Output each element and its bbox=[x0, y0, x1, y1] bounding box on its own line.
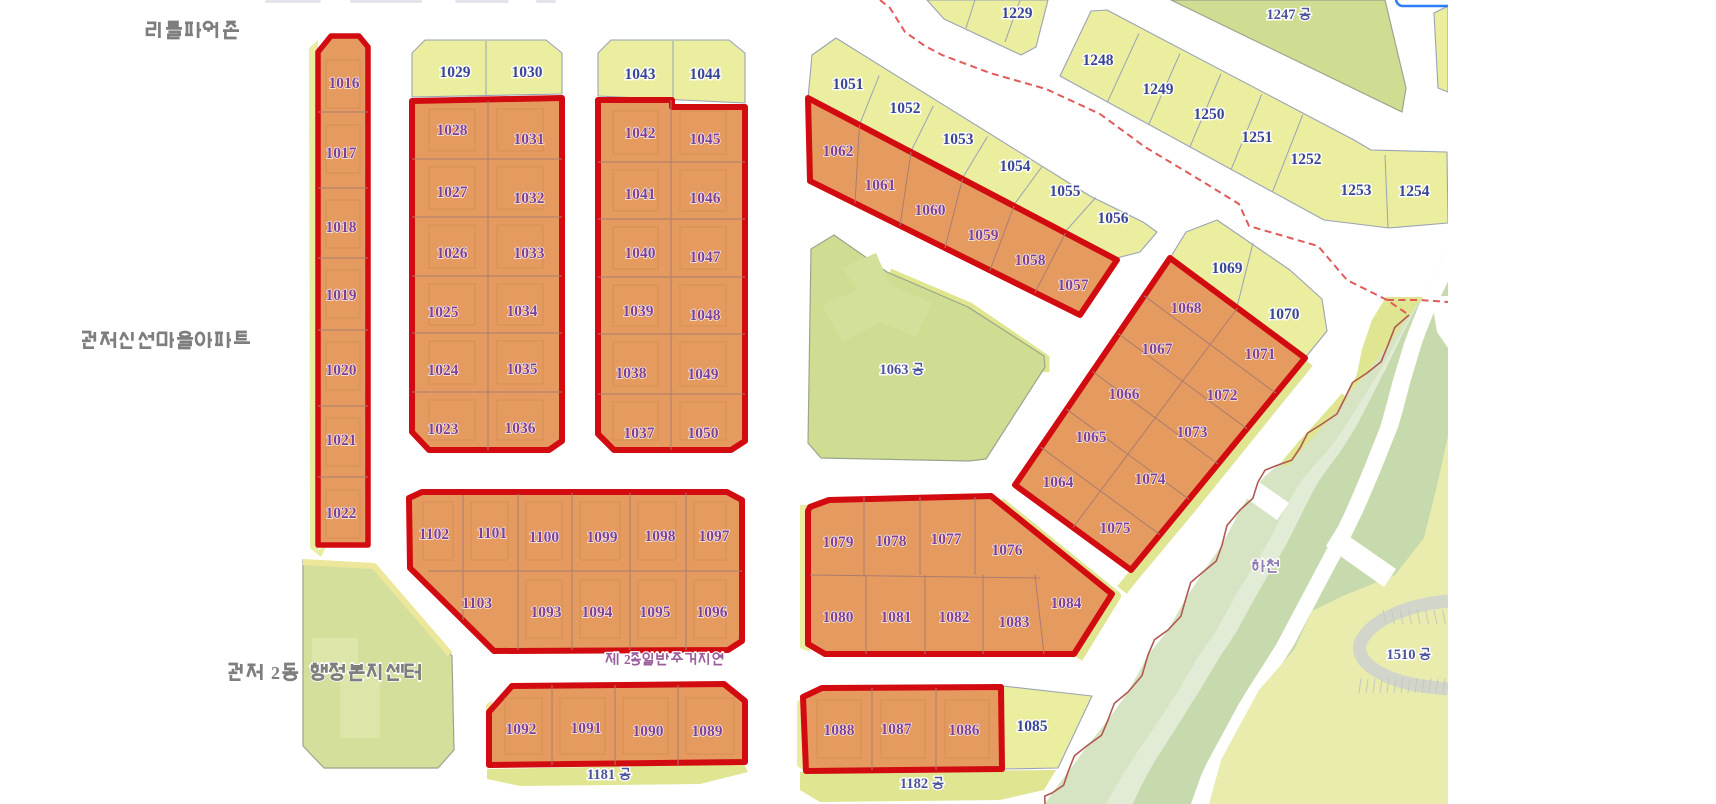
svg-text:1048: 1048 bbox=[690, 307, 721, 324]
svg-text:1070: 1070 bbox=[1269, 306, 1300, 323]
svg-text:1250: 1250 bbox=[1194, 106, 1225, 123]
svg-text:1031: 1031 bbox=[514, 131, 545, 148]
svg-text:1094: 1094 bbox=[582, 604, 613, 621]
svg-text:1037: 1037 bbox=[624, 425, 655, 442]
svg-text:1098: 1098 bbox=[645, 528, 676, 545]
svg-text:1022: 1022 bbox=[326, 505, 357, 522]
svg-text:1018: 1018 bbox=[326, 219, 357, 236]
svg-text:1066: 1066 bbox=[1109, 386, 1140, 403]
svg-text:1102: 1102 bbox=[419, 526, 449, 543]
svg-text:1056: 1056 bbox=[1098, 210, 1129, 227]
svg-text:1086: 1086 bbox=[949, 722, 980, 739]
svg-text:1082: 1082 bbox=[939, 609, 970, 626]
svg-text:1510: 1510 bbox=[1387, 647, 1416, 663]
svg-text:1027: 1027 bbox=[437, 184, 468, 201]
svg-text:1038: 1038 bbox=[616, 365, 647, 382]
svg-text:1229: 1229 bbox=[1002, 5, 1033, 22]
svg-text:1095: 1095 bbox=[640, 604, 671, 621]
svg-text:1044: 1044 bbox=[690, 66, 721, 83]
svg-text:2: 2 bbox=[271, 663, 280, 683]
svg-text:1103: 1103 bbox=[462, 595, 492, 612]
svg-text:1024: 1024 bbox=[428, 362, 459, 379]
svg-text:1081: 1081 bbox=[881, 609, 912, 626]
svg-text:1100: 1100 bbox=[529, 529, 559, 546]
svg-text:1084: 1084 bbox=[1051, 595, 1082, 612]
svg-text:1061: 1061 bbox=[865, 177, 896, 194]
svg-text:1064: 1064 bbox=[1043, 474, 1074, 491]
svg-text:1026: 1026 bbox=[437, 245, 468, 262]
svg-text:1065: 1065 bbox=[1076, 429, 1107, 446]
svg-text:1182: 1182 bbox=[900, 776, 928, 792]
svg-text:1097: 1097 bbox=[699, 528, 730, 545]
svg-text:1247: 1247 bbox=[1267, 7, 1296, 23]
svg-text:1251: 1251 bbox=[1242, 129, 1273, 146]
svg-text:1092: 1092 bbox=[506, 721, 537, 738]
svg-text:1253: 1253 bbox=[1341, 182, 1372, 199]
svg-text:1025: 1025 bbox=[428, 304, 459, 321]
svg-text:1016: 1016 bbox=[329, 75, 360, 92]
svg-text:1059: 1059 bbox=[968, 227, 999, 244]
svg-text:1057: 1057 bbox=[1058, 277, 1089, 294]
svg-text:1017: 1017 bbox=[326, 145, 357, 162]
svg-text:1099: 1099 bbox=[587, 529, 618, 546]
svg-text:1089: 1089 bbox=[692, 723, 723, 740]
svg-text:1040: 1040 bbox=[625, 245, 656, 262]
svg-text:1033: 1033 bbox=[514, 245, 545, 262]
svg-text:1069: 1069 bbox=[1212, 260, 1243, 277]
svg-text:1072: 1072 bbox=[1207, 387, 1238, 404]
svg-text:1091: 1091 bbox=[571, 720, 602, 737]
svg-text:1055: 1055 bbox=[1050, 183, 1081, 200]
svg-text:1067: 1067 bbox=[1142, 341, 1173, 358]
svg-text:1021: 1021 bbox=[326, 432, 357, 449]
svg-text:1054: 1054 bbox=[1000, 158, 1031, 175]
svg-text:1249: 1249 bbox=[1143, 81, 1174, 98]
svg-text:1058: 1058 bbox=[1015, 252, 1046, 269]
svg-text:1039: 1039 bbox=[623, 303, 654, 320]
svg-text:1050: 1050 bbox=[688, 425, 719, 442]
svg-text:1036: 1036 bbox=[505, 420, 536, 437]
svg-text:1090: 1090 bbox=[633, 723, 664, 740]
svg-text:1077: 1077 bbox=[931, 531, 962, 548]
svg-text:1080: 1080 bbox=[823, 609, 854, 626]
svg-text:2: 2 bbox=[624, 652, 631, 667]
svg-text:1071: 1071 bbox=[1245, 346, 1276, 363]
svg-text:1068: 1068 bbox=[1171, 300, 1202, 317]
svg-text:1047: 1047 bbox=[690, 249, 721, 266]
svg-text:1248: 1248 bbox=[1083, 52, 1114, 69]
svg-text:1045: 1045 bbox=[690, 131, 721, 148]
svg-text:1035: 1035 bbox=[507, 361, 538, 378]
svg-text:1096: 1096 bbox=[697, 604, 728, 621]
svg-text:1019: 1019 bbox=[326, 287, 357, 304]
svg-text:1093: 1093 bbox=[531, 604, 562, 621]
svg-text:1074: 1074 bbox=[1135, 471, 1166, 488]
svg-text:1254: 1254 bbox=[1399, 183, 1430, 200]
svg-text:1085: 1085 bbox=[1017, 718, 1048, 735]
svg-text:1034: 1034 bbox=[507, 303, 538, 320]
svg-text:1049: 1049 bbox=[688, 366, 719, 383]
svg-text:1023: 1023 bbox=[428, 421, 459, 438]
svg-text:1083: 1083 bbox=[999, 614, 1030, 631]
svg-text:1101: 1101 bbox=[477, 525, 507, 542]
svg-text:1075: 1075 bbox=[1100, 520, 1131, 537]
svg-text:1030: 1030 bbox=[512, 64, 543, 81]
svg-text:1076: 1076 bbox=[992, 542, 1023, 559]
svg-text:1051: 1051 bbox=[833, 76, 864, 93]
svg-text:1073: 1073 bbox=[1177, 424, 1208, 441]
svg-text:1052: 1052 bbox=[890, 100, 921, 117]
svg-text:1041: 1041 bbox=[625, 186, 656, 203]
svg-text:1042: 1042 bbox=[625, 125, 656, 142]
svg-text:1088: 1088 bbox=[824, 722, 855, 739]
svg-text:1181: 1181 bbox=[587, 767, 615, 783]
svg-text:1063: 1063 bbox=[880, 362, 909, 378]
svg-text:1046: 1046 bbox=[690, 190, 721, 207]
svg-text:1252: 1252 bbox=[1291, 151, 1322, 168]
svg-text:1020: 1020 bbox=[326, 362, 357, 379]
svg-text:1028: 1028 bbox=[437, 122, 468, 139]
svg-text:1078: 1078 bbox=[876, 533, 907, 550]
svg-text:1032: 1032 bbox=[514, 190, 545, 207]
svg-text:1060: 1060 bbox=[915, 202, 946, 219]
svg-text:1043: 1043 bbox=[625, 66, 656, 83]
svg-text:1062: 1062 bbox=[823, 143, 854, 160]
svg-text:1087: 1087 bbox=[881, 721, 912, 738]
svg-text:1053: 1053 bbox=[943, 131, 974, 148]
svg-text:1029: 1029 bbox=[440, 64, 471, 81]
svg-text:1079: 1079 bbox=[823, 534, 854, 551]
